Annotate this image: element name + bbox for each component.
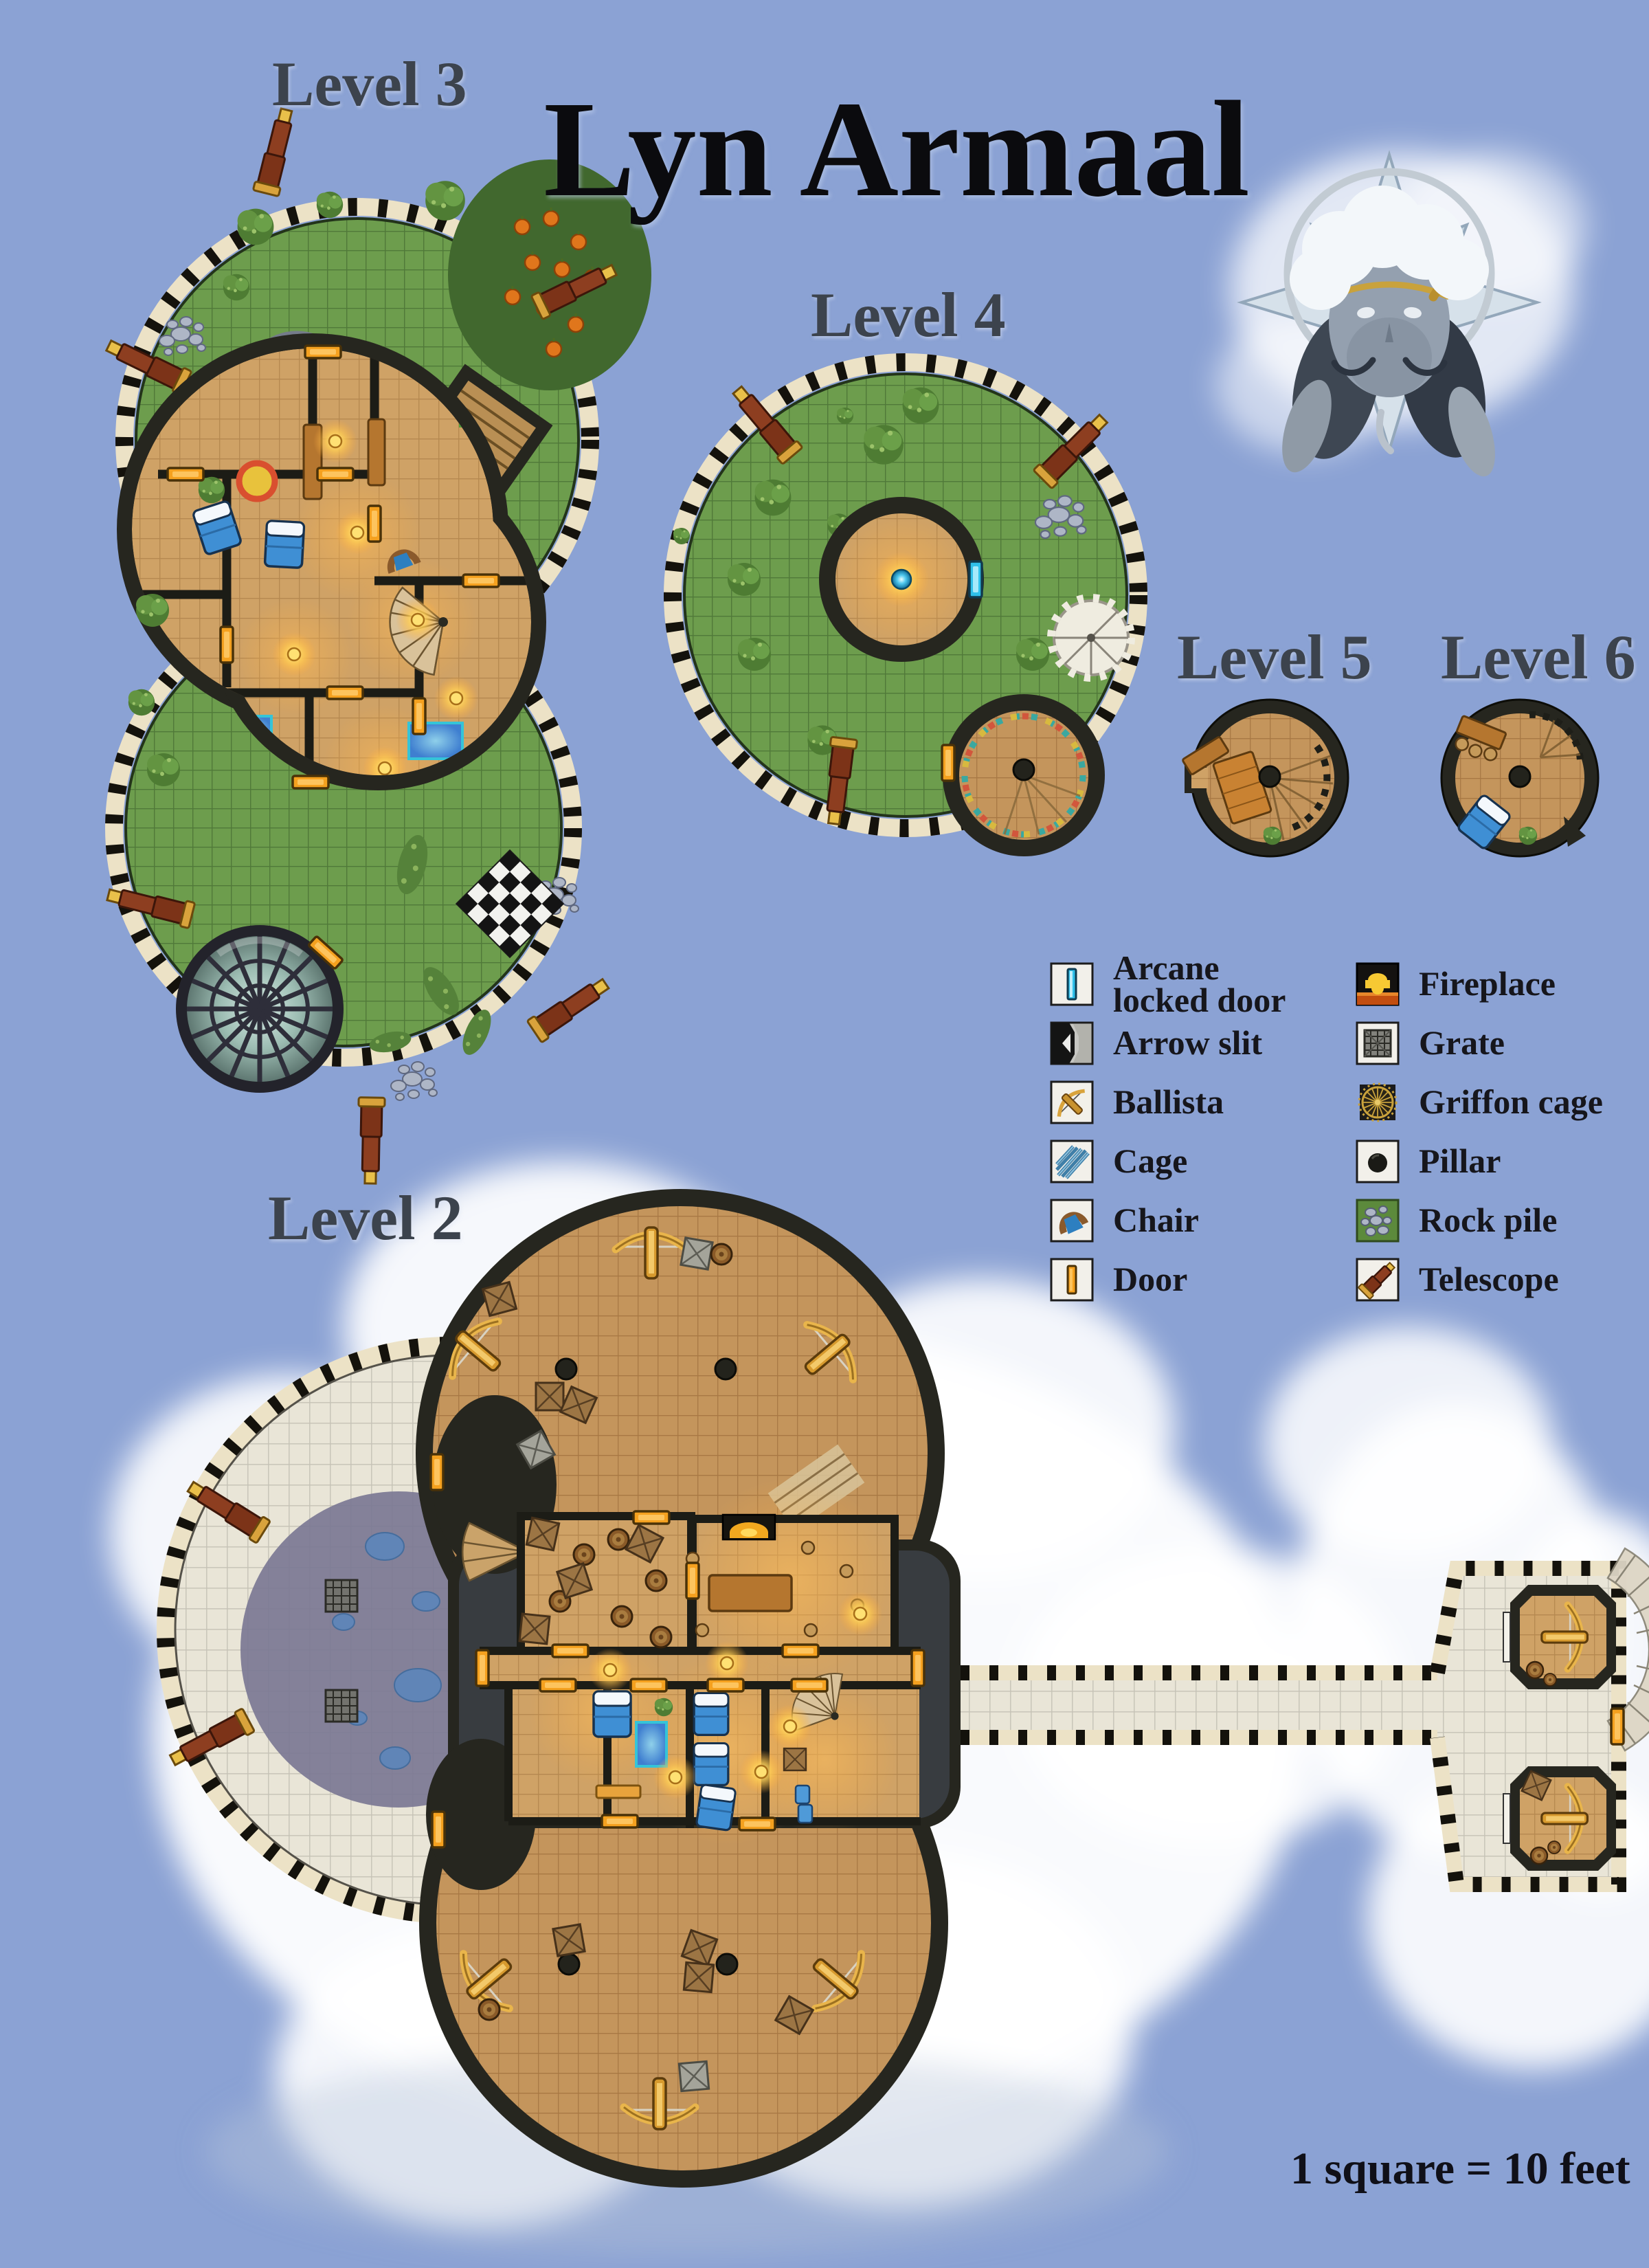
legend-item-label: Arrow slit	[1113, 1027, 1262, 1060]
scale-note: 1 square = 10 feet	[1290, 2143, 1630, 2195]
crate	[784, 1748, 806, 1770]
level-4-label: Level 4	[811, 283, 1006, 346]
lamp	[396, 598, 440, 642]
bed	[265, 521, 304, 568]
pillar-marker	[717, 1954, 737, 1975]
bush	[864, 425, 904, 465]
door-marker	[708, 1679, 743, 1691]
legend-item-label: Grate	[1419, 1027, 1505, 1060]
bed	[696, 1784, 736, 1830]
pillar-marker	[1510, 766, 1530, 787]
telescope-icon	[1356, 1258, 1400, 1302]
towels	[796, 1786, 812, 1823]
legend-item: Grate	[1356, 1021, 1649, 1065]
crate	[679, 2061, 708, 2091]
central-chamber	[819, 497, 984, 662]
round-rug	[239, 463, 275, 499]
barrel	[479, 1999, 500, 2020]
bush	[673, 528, 690, 544]
legend-item-label: Arcane locked door	[1113, 952, 1286, 1017]
map-poster: { "page": { "title": "Lyn Armaal", "scal…	[0, 0, 1649, 2268]
lamp	[272, 632, 316, 676]
level-6-map	[1442, 700, 1598, 856]
telescope-marker	[357, 1098, 385, 1184]
door-marker	[686, 1563, 699, 1599]
barrel	[1544, 1674, 1556, 1686]
barrel	[1527, 1662, 1543, 1678]
side-table	[596, 1786, 640, 1798]
legend-item: Telescope	[1356, 1258, 1649, 1302]
door-marker	[476, 1650, 489, 1686]
legend-item: Griffon cage	[1356, 1080, 1649, 1124]
crate	[684, 1962, 713, 1992]
ballista-room	[1503, 1766, 1616, 1871]
door-marker	[739, 1818, 775, 1830]
legend-column-left: Arcane locked door Arrow slit Ballista C…	[1050, 962, 1373, 1317]
bush	[755, 480, 792, 516]
fireplace-icon	[1356, 962, 1400, 1006]
level-6-label: Level 6	[1441, 625, 1636, 689]
arrow-slit-icon	[1050, 1021, 1094, 1065]
legend-item-label: Fireplace	[1419, 968, 1556, 1001]
door-marker	[293, 776, 328, 788]
griffon-cage-icon	[1356, 1080, 1400, 1124]
grate-marker	[326, 1690, 357, 1722]
sky-bridge	[961, 1673, 1437, 1737]
chair-icon	[1050, 1199, 1094, 1243]
bush	[136, 594, 169, 627]
door-marker	[221, 627, 233, 663]
bush	[1016, 638, 1049, 671]
plant	[1519, 827, 1537, 845]
legend-item: Door	[1050, 1258, 1373, 1302]
lamp	[434, 676, 478, 720]
bed	[694, 1693, 728, 1735]
bush	[223, 274, 249, 300]
door-marker	[413, 698, 425, 734]
arcane-locked-door-icon	[1050, 962, 1094, 1006]
legend-item-label: Cage	[1113, 1145, 1187, 1178]
door-marker	[783, 1645, 818, 1657]
door-marker	[602, 1815, 638, 1827]
arrow-slit-marker	[1503, 1612, 1510, 1662]
table	[709, 1575, 792, 1611]
door-marker	[168, 468, 203, 480]
pillar-marker	[559, 1954, 579, 1975]
lamp	[739, 1750, 783, 1794]
grate-marker	[326, 1580, 357, 1612]
pool	[636, 1722, 666, 1766]
crate	[536, 1383, 563, 1410]
door-marker	[631, 1679, 666, 1691]
ballista-room	[1503, 1585, 1616, 1689]
pillar-marker	[556, 1359, 576, 1379]
level-5-label: Level 5	[1177, 625, 1372, 689]
level-3-map	[103, 107, 651, 1183]
door-marker	[327, 687, 363, 699]
grate-icon	[1356, 1021, 1400, 1065]
door-marker	[463, 575, 499, 587]
door-marker	[540, 1679, 576, 1691]
side-tower	[942, 694, 1105, 856]
bush	[128, 689, 155, 715]
lamp	[313, 419, 357, 463]
arcane-locked-door-marker	[969, 562, 982, 597]
legend-item-label: Ballista	[1113, 1086, 1224, 1119]
door-marker	[305, 346, 341, 358]
legend-item: Arcane locked door	[1050, 962, 1373, 1006]
legend-item-label: Rock pile	[1419, 1204, 1557, 1237]
bed	[694, 1744, 728, 1786]
level-5-map	[1182, 700, 1348, 856]
door-marker	[633, 1511, 669, 1524]
lamp	[768, 1704, 812, 1748]
bush	[147, 753, 180, 786]
legend-item: Fireplace	[1356, 962, 1649, 1006]
level-2-label: Level 2	[268, 1186, 463, 1249]
legend-item: Arrow slit	[1050, 1021, 1373, 1065]
central-keep	[416, 1189, 961, 2188]
door-marker	[552, 1645, 588, 1657]
griffon-cage-dome	[176, 925, 344, 1093]
barrel	[1531, 1847, 1547, 1864]
fireplace-marker	[723, 1515, 775, 1539]
legend-item-label: Griffon cage	[1419, 1086, 1603, 1119]
legend-item-label: Door	[1113, 1263, 1187, 1296]
pillar-marker	[1013, 759, 1034, 780]
table	[368, 419, 385, 485]
pillar-marker	[1259, 766, 1280, 787]
door-icon	[1050, 1258, 1094, 1302]
rock-pile	[391, 1062, 437, 1100]
legend-item: Cage	[1050, 1139, 1373, 1183]
door-marker	[368, 506, 381, 542]
bed	[594, 1691, 631, 1737]
door-marker	[942, 745, 954, 781]
lamp	[588, 1648, 632, 1692]
lamp	[653, 1755, 697, 1799]
door-marker	[912, 1650, 924, 1686]
ballista-icon	[1050, 1080, 1094, 1124]
legend-item-label: Telescope	[1419, 1263, 1559, 1296]
bush	[728, 563, 761, 596]
door-marker	[432, 1812, 445, 1847]
legend-item-label: Pillar	[1419, 1145, 1501, 1178]
door-marker	[317, 468, 353, 480]
pillar-marker	[715, 1359, 736, 1379]
east-platform	[1437, 1548, 1649, 1885]
rock-pile-icon	[1356, 1199, 1400, 1243]
legend-item: Pillar	[1356, 1139, 1649, 1183]
arrow-slit-marker	[1503, 1794, 1510, 1843]
legend-item: Chair	[1050, 1199, 1373, 1243]
crate	[483, 1282, 517, 1316]
level-4-map	[673, 362, 1138, 856]
barrel	[711, 1244, 732, 1265]
door-marker	[1611, 1709, 1624, 1744]
barrel	[1548, 1841, 1560, 1854]
legend-item: Ballista	[1050, 1080, 1373, 1124]
bush	[738, 638, 771, 671]
bush	[903, 388, 939, 424]
door-marker	[431, 1454, 443, 1490]
arcane-orb	[892, 570, 911, 589]
cage-icon	[1050, 1139, 1094, 1183]
crate	[553, 1924, 585, 1956]
telescope-marker	[527, 973, 613, 1043]
crate	[681, 1238, 713, 1269]
bush	[837, 408, 853, 424]
plant	[1264, 827, 1281, 845]
level-3-label: Level 3	[272, 52, 467, 115]
pillar-icon	[1356, 1139, 1400, 1183]
legend-column-right: Fireplace Grate Griffon cage Pillar Rock…	[1356, 962, 1649, 1317]
lamp	[838, 1592, 882, 1636]
plant	[655, 1698, 673, 1716]
legend-item: Rock pile	[1356, 1199, 1649, 1243]
door-marker	[792, 1679, 827, 1691]
legend-item-label: Chair	[1113, 1204, 1199, 1237]
